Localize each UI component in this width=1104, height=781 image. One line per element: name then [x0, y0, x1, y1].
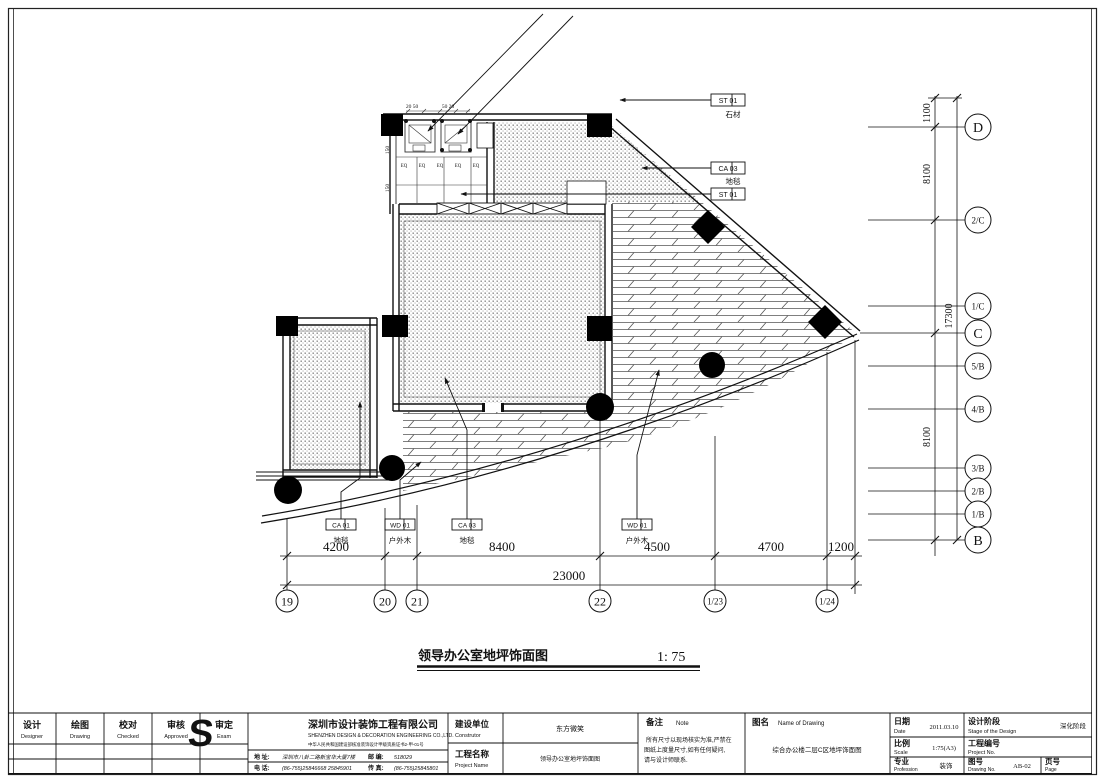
constructor-value: 东方微笑 — [556, 724, 584, 733]
signoff-cn: 绘图 — [71, 719, 89, 730]
blueprint-canvas: 20 50 50 20 150 150 EQ EQ EQ EQ EQ — [0, 0, 1104, 781]
detail-dim-side: 150 — [385, 184, 391, 193]
detail-dim: 50 20 — [442, 104, 455, 110]
finish-code: CA 03 — [458, 523, 476, 530]
drawingno-value: AB-02 — [1013, 763, 1031, 770]
grid-bubble-label: 5/B — [971, 362, 984, 372]
finish-code: ST 01 — [719, 98, 738, 105]
profession-label-en: Profession — [894, 767, 918, 773]
grid-bubble-label: 20 — [379, 595, 391, 609]
grid-bubble-label: B — [973, 534, 982, 549]
profession-label-cn: 专业 — [894, 756, 909, 766]
signoff-en: Designer — [21, 734, 43, 740]
stage-label-cn: 设计阶段 — [968, 716, 1000, 726]
dim-label: 4500 — [644, 539, 670, 554]
drawing-title: 领导办公室地坪饰面图 — [418, 648, 548, 663]
dim-label: 17300 — [944, 304, 955, 329]
dim-label: 8100 — [922, 427, 933, 447]
finish-code: WD 01 — [390, 523, 410, 530]
profession-value: 装饰 — [940, 761, 954, 770]
scale-value: 1:75(A3) — [932, 745, 956, 752]
eq-label: EQ — [455, 164, 462, 169]
cad-sheet: { "drawing": { "title": "领导办公室地坪饰面图", "s… — [0, 0, 1104, 781]
dim-label: 1200 — [828, 539, 854, 554]
pantry-detail — [396, 109, 487, 203]
dim-label: 8100 — [922, 164, 933, 184]
constructor-label-en: Construtor — [455, 733, 481, 739]
eq-label: EQ — [419, 164, 426, 169]
finish-code: CA 01 — [332, 523, 350, 530]
page-label-cn: 页号 — [1045, 757, 1061, 766]
note-line: 图纸上度量尺寸,如有任何疑问, — [644, 746, 726, 754]
dim-label: 4700 — [758, 539, 784, 554]
company-cert: 中华人民共和国建设部核准装饰设计甲级资质证书2-甲-01号 — [308, 741, 424, 748]
company-name-en: SHENZHEN DESIGN & DECORATION ENGINEERING… — [308, 733, 454, 739]
grid-bubble-label: 1/C — [971, 302, 984, 312]
grid-bubble-label: D — [973, 121, 983, 136]
grid-bubble-label: 3/B — [971, 464, 984, 474]
square-column — [587, 114, 612, 137]
name-label-cn: 图名 — [752, 717, 769, 727]
company-name-cn: 深圳市设计装饰工程有限公司 — [308, 718, 438, 731]
grid-bubble-label: 2/B — [971, 487, 984, 497]
bottom-grid-bubbles — [276, 590, 838, 612]
finish-name: 地毯 — [726, 176, 741, 186]
bottom-grid-text: 19 20 21 22 1/23 1/24 — [281, 595, 835, 609]
square-column — [276, 316, 298, 336]
dim-label: 1100 — [922, 103, 933, 123]
dim-label: 8400 — [489, 539, 515, 554]
company-zip: 518029 — [394, 755, 412, 761]
page-label-en: Page — [1045, 767, 1057, 773]
company-fax-label: 传 真: — [367, 764, 384, 772]
square-column — [382, 315, 408, 337]
detail-dim-side: 150 — [385, 146, 391, 155]
grid-bubble-label: 1/24 — [819, 597, 836, 607]
dim-label: 4200 — [323, 539, 349, 554]
grid-bubble-label: C — [973, 327, 982, 342]
company-fax: (86-755)25845801 — [394, 766, 438, 772]
finish-code: ST 01 — [719, 192, 738, 199]
grid-bubble-label: 21 — [411, 595, 423, 609]
note-line: 请与设计师联系. — [644, 756, 688, 764]
grid-bubble-label: 1/23 — [707, 597, 724, 607]
scale-label-en: Scale — [894, 750, 908, 756]
detail-dim: 20 50 — [406, 104, 419, 110]
stage-value: 深化阶段 — [1060, 721, 1087, 730]
signoff-cn: 设计 — [23, 719, 41, 730]
dim-total-label: 23000 — [553, 568, 586, 583]
round-column — [379, 455, 405, 481]
projectno-label-cn: 工程编号 — [968, 738, 1000, 748]
signoff-cn: 审核 — [167, 719, 185, 730]
project-label-cn: 工程名称 — [455, 749, 490, 759]
grid-bubble-label: 2/C — [971, 216, 984, 226]
note-label-en: Note — [676, 721, 689, 727]
bottom-dimension-text: 4200 8400 4500 4700 1200 23000 — [323, 539, 854, 583]
constructor-label-cn: 建设单位 — [454, 719, 490, 729]
date-label-en: Date — [894, 729, 906, 735]
drawing-scale: 1: 75 — [657, 650, 685, 665]
signoff-en: Checked — [117, 734, 139, 740]
note-line: 所有尺寸以现场核实为准,严禁在 — [646, 736, 732, 744]
grid-bubble-label: 22 — [594, 595, 606, 609]
date-value: 2011.03.10 — [929, 724, 958, 731]
name-label-en: Name of Drawing — [778, 721, 824, 727]
round-column — [699, 352, 725, 378]
right-dimension-text: 1100 8100 17300 8100 — [922, 103, 955, 447]
signoff-en: Drawing — [70, 734, 90, 740]
name-value: 综合办公楼二层C区地坪饰面图 — [772, 745, 861, 754]
company-addr: 深圳市八卦二路新宝华大厦7楼 — [282, 754, 356, 761]
signoff-en: Approved — [164, 734, 188, 740]
company-zip-label: 邮 编: — [368, 753, 384, 761]
date-label-cn: 日期 — [894, 716, 910, 726]
finish-code: CA 03 — [718, 166, 737, 173]
signoff-cn: 校对 — [119, 719, 137, 730]
square-column — [587, 316, 612, 341]
finish-code: WD 01 — [627, 523, 647, 530]
signoff-en: Exam — [217, 734, 231, 740]
grid-bubble-label: 4/B — [971, 405, 984, 415]
round-column — [274, 476, 302, 504]
eq-label: EQ — [473, 164, 480, 169]
square-column — [381, 114, 403, 136]
glazed-partition — [437, 203, 567, 214]
company-logo: S — [186, 713, 216, 755]
eq-label: EQ — [401, 164, 408, 169]
finish-name: 石材 — [726, 109, 741, 119]
scale-label-cn: 比例 — [894, 738, 910, 748]
note-label-cn: 备注 — [645, 717, 664, 727]
round-column — [586, 393, 614, 421]
drawing-title-block: 领导办公室地坪饰面图 1: 75 — [417, 648, 700, 671]
project-value: 领导办公室地坪饰面图 — [540, 755, 600, 763]
finish-name: 户外木 — [389, 535, 412, 545]
project-label-en: Project Name — [455, 763, 488, 769]
grid-bubble-label: 1/B — [971, 510, 984, 520]
eq-label: EQ — [437, 164, 444, 169]
grid-bubble-label: 19 — [281, 595, 293, 609]
drawingno-label-cn: 图号 — [968, 757, 983, 766]
stage-label-en: Stage of the Design — [968, 729, 1016, 735]
drawingno-label-en: Drawing No. — [968, 767, 996, 773]
finish-name: 地毯 — [460, 535, 475, 545]
company-tel: (86-755)25846668 25845901 — [282, 766, 352, 772]
company-addr-label: 地 址: — [254, 753, 270, 761]
signoff-cn: 审定 — [215, 719, 234, 730]
company-tel-label: 电 话: — [254, 764, 270, 772]
projectno-label-en: Project No. — [968, 750, 996, 756]
